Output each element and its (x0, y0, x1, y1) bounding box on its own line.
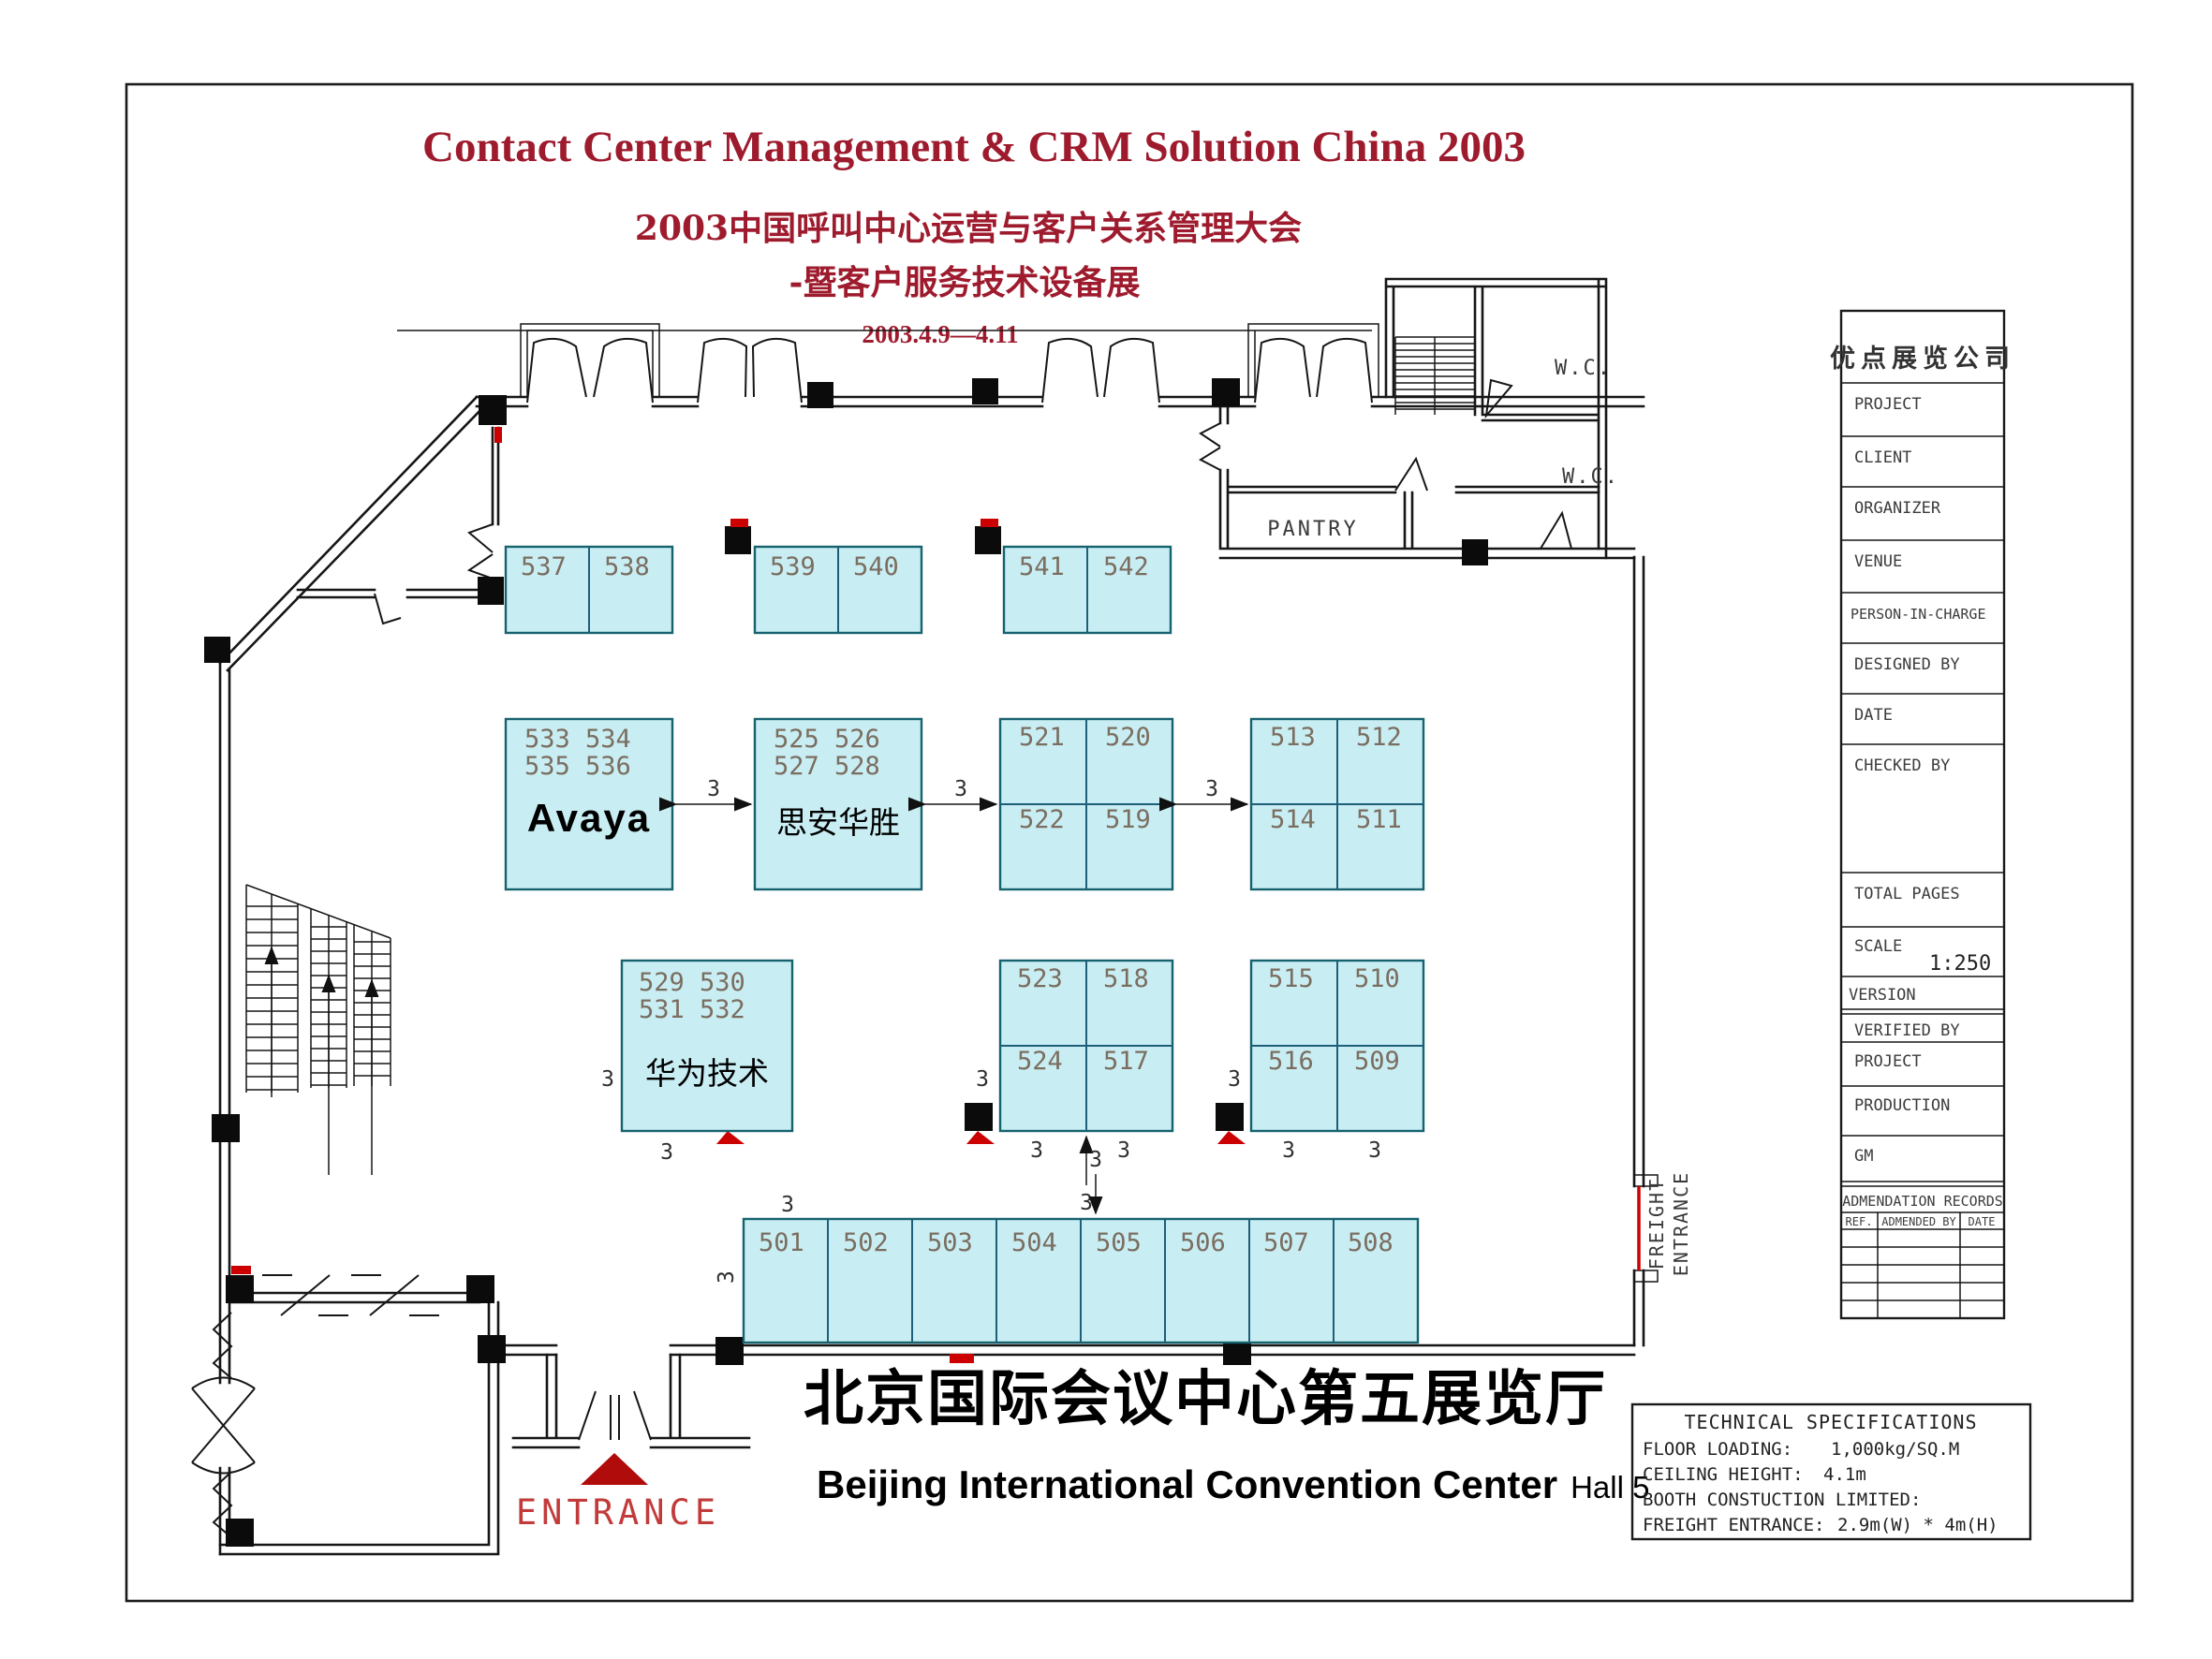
revolving-door (192, 1378, 255, 1474)
field-production: PRODUCTION (1854, 1096, 1950, 1115)
venue-name-en: Beijing International Convention CenterH… (817, 1462, 1649, 1506)
field-version: VERSION (1849, 986, 1916, 1005)
dim-3: 3 (1089, 1148, 1102, 1172)
booth-label: 507 (1263, 1228, 1309, 1257)
page-title: Contact Center Management & CRM Solution… (422, 123, 1526, 171)
booth-label: 541 (1019, 552, 1065, 581)
field-verified-by: VERIFIED BY (1854, 1021, 1960, 1040)
booth-label: 512 (1356, 723, 1402, 752)
tech-title: TECHNICAL SPECIFICATIONS (1685, 1411, 1978, 1433)
booth-label: 513 (1270, 723, 1316, 752)
pantry-label: PANTRY (1267, 518, 1358, 541)
booth-label: 539 (770, 552, 816, 581)
booth-label: 525 526 (774, 725, 880, 754)
field-date: DATE (1854, 706, 1893, 725)
tech-ceiling-label: CEILING HEIGHT: (1643, 1464, 1804, 1485)
booth-label: 523 (1017, 964, 1063, 993)
entrance-label: ENTRANCE (516, 1492, 720, 1533)
dim-3: 3 (715, 1270, 739, 1284)
booth-label: 504 (1011, 1228, 1057, 1257)
field-checked-by: CHECKED BY (1854, 756, 1950, 775)
field-scale: SCALE (1854, 937, 1902, 956)
exhibitor-huawei: 华为技术 (645, 1055, 769, 1092)
booth-label: 509 (1354, 1047, 1400, 1076)
booth-label: 527 528 (774, 752, 880, 781)
tech-booth-limit-label: BOOTH CONSTUCTION LIMITED: (1643, 1490, 1921, 1510)
booth-label: 524 (1017, 1047, 1063, 1076)
freight-entrance-label: ENTRANCE (1670, 1171, 1692, 1276)
tech-freight-value: 2.9m(W) * 4m(H) (1837, 1515, 1998, 1535)
field-person-in-charge: PERSON-IN-CHARGE (1851, 606, 1986, 623)
field-venue: VENUE (1854, 552, 1902, 571)
page-subtitle2-cn: -暨客户服务技术设备展 (789, 263, 1141, 302)
dim-3: 3 (1228, 1067, 1241, 1092)
booth-label: 538 (604, 552, 650, 581)
wc2-door (1541, 513, 1571, 549)
venue-en-text: Beijing International Convention Center (817, 1462, 1557, 1506)
booth-label: 501 (759, 1228, 804, 1257)
booth-label: 533 534 (524, 725, 631, 754)
stairs-annex (1395, 337, 1475, 415)
floor-plan: Contact Center Management & CRM Solution… (0, 0, 2212, 1659)
booth-label: 502 (843, 1228, 889, 1257)
booth-label: 510 (1354, 964, 1400, 993)
dim-3: 3 (1368, 1138, 1381, 1163)
tech-floor-loading-value: 1,000kg/SQ.M (1831, 1439, 1959, 1460)
entrance-arrow (581, 1453, 648, 1485)
venue-name-cn: 北京国际会议中心第五展览厅 (804, 1365, 1607, 1434)
booth-label: 529 530 (639, 968, 745, 997)
exhibitor-sian: 思安华胜 (776, 804, 900, 841)
wc1-label: W.C. (1555, 357, 1612, 380)
dim-3: 3 (660, 1140, 673, 1165)
booth-label: 519 (1105, 805, 1151, 834)
field-designed-by: DESIGNED BY (1854, 655, 1960, 674)
field-project: PROJECT (1854, 395, 1922, 414)
booth-label: 516 (1268, 1047, 1314, 1076)
booth-labels: 537 538 539 540 541 542 533 534 535 536 … (521, 552, 1402, 1257)
booth-label: 537 (521, 552, 567, 581)
booth-label: 540 (853, 552, 899, 581)
field-project2: PROJECT (1854, 1052, 1922, 1071)
dim-3: 3 (1080, 1191, 1093, 1215)
dim-3: 3 (976, 1067, 989, 1092)
amend-title: ADMENDATION RECORDS (1842, 1193, 2003, 1210)
booth-label: 511 (1356, 805, 1402, 834)
dim-3: 3 (707, 777, 720, 801)
drawing-company: 优点展览公司 (1830, 344, 2015, 374)
booth-label: 542 (1103, 552, 1149, 581)
freight-entrance-label: FREIGHT (1645, 1178, 1668, 1270)
booth-label: 531 532 (639, 995, 745, 1024)
booth-label: 515 (1268, 964, 1314, 993)
title-block: 优点展览公司 PROJECT CLIENT ORGANIZER VENUE PE… (1830, 311, 2015, 1318)
tech-ceiling-value: 4.1m (1823, 1464, 1866, 1485)
booth-label: 508 (1348, 1228, 1394, 1257)
booth-label: 521 (1019, 723, 1065, 752)
booth-label: 506 (1180, 1228, 1226, 1257)
booth-label: 522 (1019, 805, 1065, 834)
pantry-inner-door (1395, 459, 1427, 491)
dim-3: 3 (601, 1067, 614, 1092)
booth-label: 520 (1105, 723, 1151, 752)
booth-label: 505 (1096, 1228, 1142, 1257)
tech-floor-loading-label: FLOOR LOADING: (1643, 1439, 1792, 1460)
stairs-west (246, 885, 391, 1175)
wc2-label: W.C. (1562, 465, 1619, 489)
booth-blocks (506, 547, 1423, 1343)
field-total-pages: TOTAL PAGES (1854, 885, 1960, 903)
amend-col-ref: REF. (1846, 1215, 1873, 1228)
exhibitor-avaya: Avaya (527, 796, 651, 840)
dim-3: 3 (1205, 777, 1218, 801)
dim-3: 3 (1282, 1138, 1295, 1163)
dim-3: 3 (781, 1193, 794, 1217)
dim-3: 3 (1117, 1138, 1130, 1163)
booth-label: 514 (1270, 805, 1316, 834)
booth-label: 535 536 (524, 752, 631, 781)
scale-value: 1:250 (1929, 952, 1991, 976)
amend-col-by: ADMENDED BY (1881, 1215, 1956, 1228)
booth-label: 518 (1103, 964, 1149, 993)
dim-3: 3 (1030, 1138, 1043, 1163)
event-dates: 2003.4.9—4.11 (862, 320, 1018, 348)
page: { "header": { "title": "Contact Center M… (0, 0, 2212, 1659)
walls (220, 279, 1658, 1554)
tech-specs: TECHNICAL SPECIFICATIONS FLOOR LOADING: … (1632, 1404, 2030, 1539)
field-gm: GM (1854, 1147, 1873, 1166)
amend-col-date: DATE (1969, 1215, 1996, 1228)
tech-freight-label: FREIGHT ENTRANCE: (1643, 1515, 1824, 1535)
page-subtitle-cn: 2003中国呼叫中心运营与客户关系管理大会 (635, 209, 1302, 248)
field-client: CLIENT (1854, 448, 1911, 467)
venue-hall-text: Hall 5 (1571, 1470, 1649, 1505)
booth-label: 517 (1103, 1047, 1149, 1076)
dim-3: 3 (954, 777, 967, 801)
field-organizer: ORGANIZER (1854, 499, 1941, 518)
booth-label: 503 (927, 1228, 973, 1257)
